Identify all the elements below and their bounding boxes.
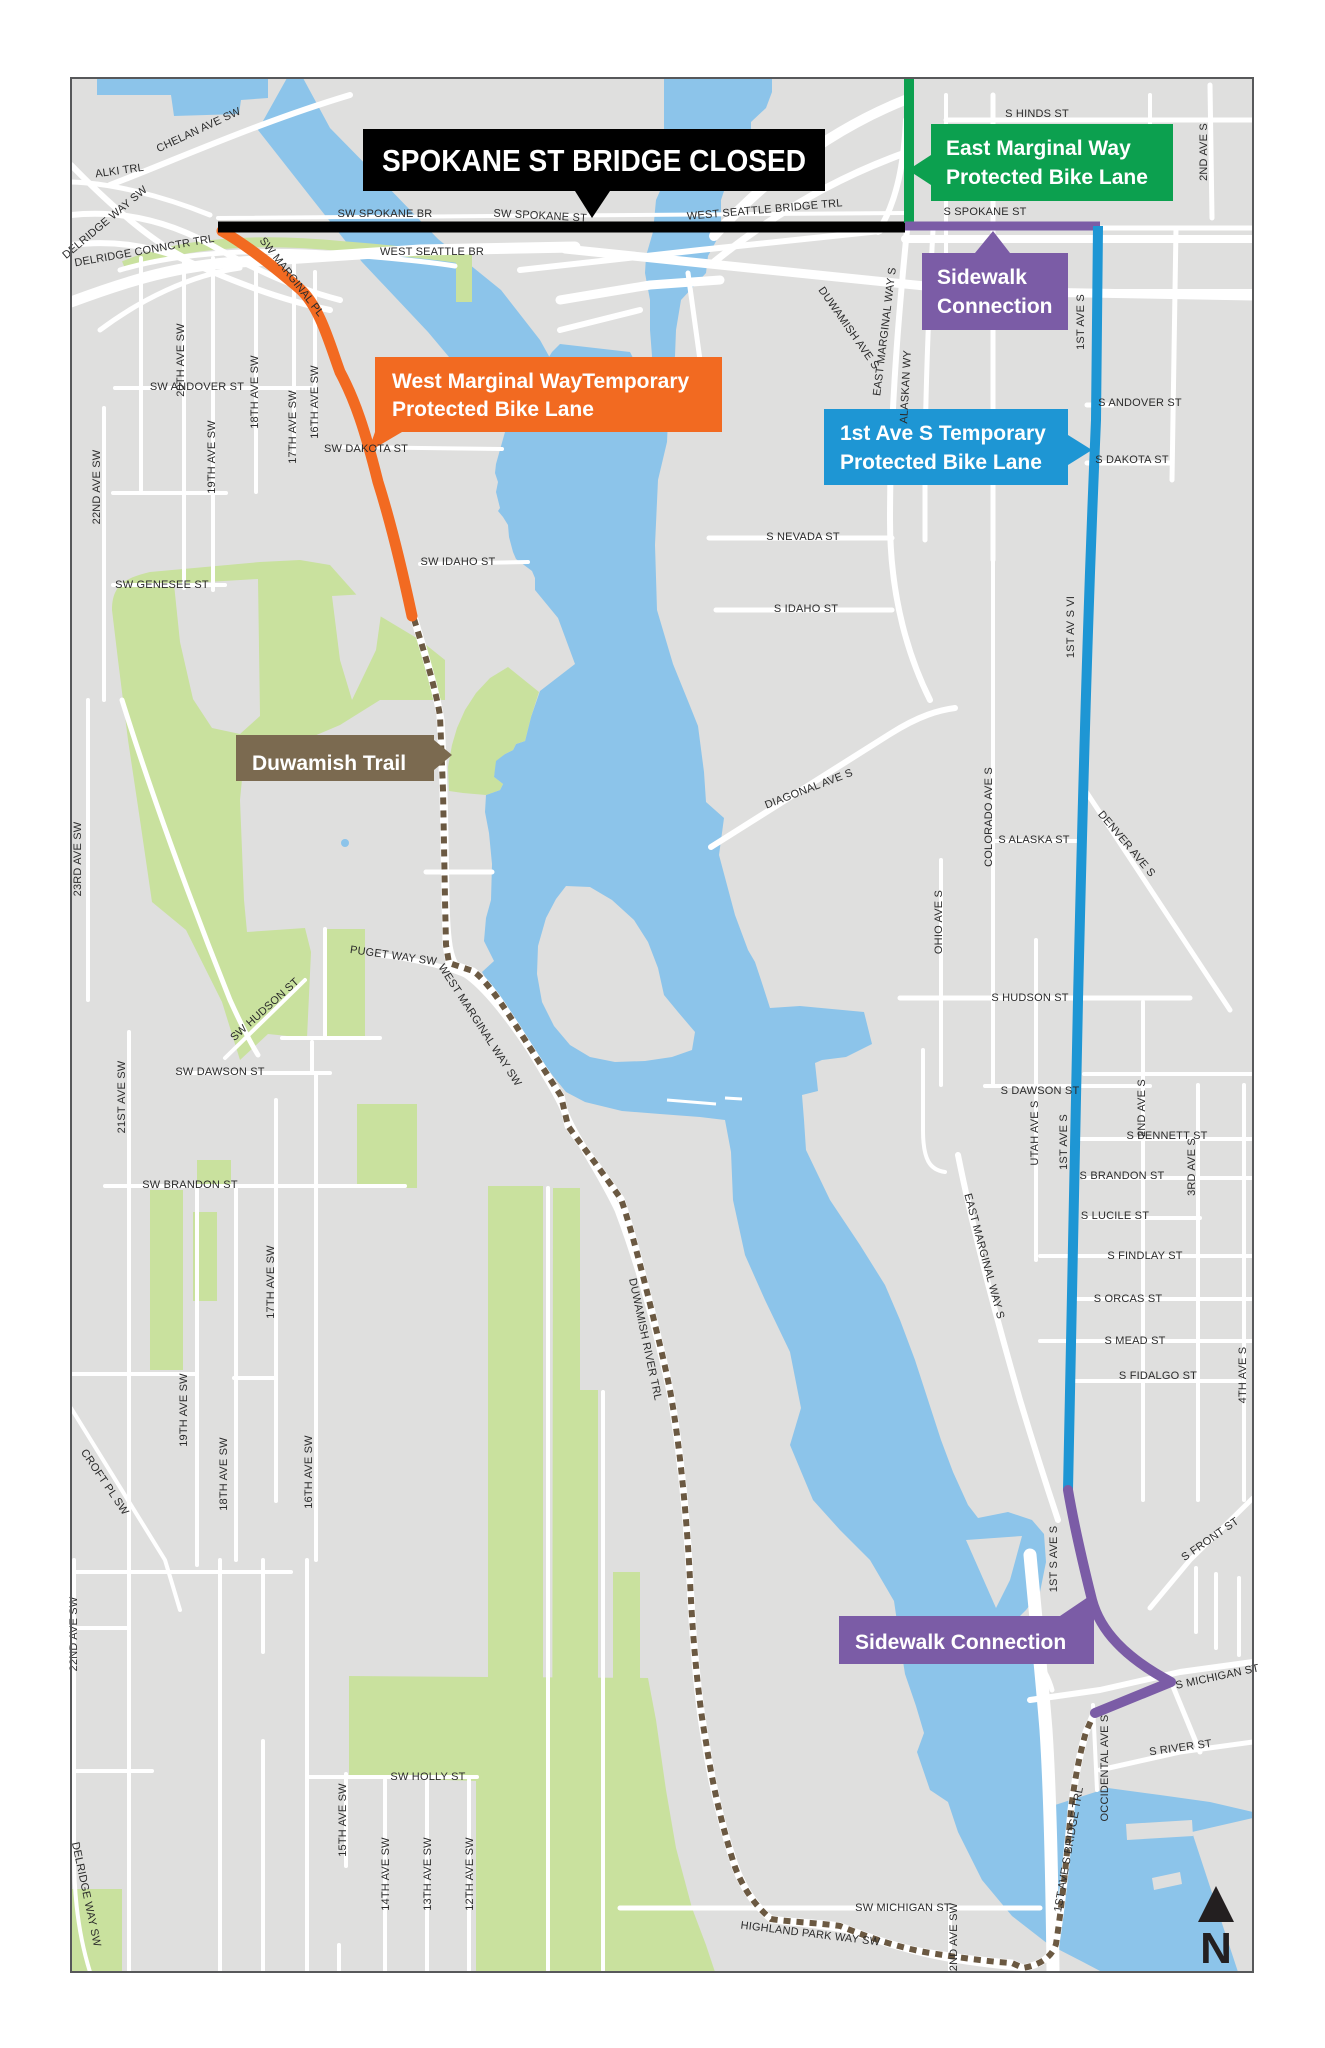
svg-text:SW HOLLY ST: SW HOLLY ST	[390, 1771, 465, 1783]
svg-text:1ST S AVE S: 1ST S AVE S	[1048, 1526, 1060, 1593]
svg-text:SW DAKOTA ST: SW DAKOTA ST	[324, 443, 408, 455]
svg-text:Sidewalk Connection: Sidewalk Connection	[855, 1631, 1066, 1654]
svg-text:16TH AVE SW: 16TH AVE SW	[303, 1435, 315, 1509]
svg-text:SW ANDOVER ST: SW ANDOVER ST	[150, 381, 244, 393]
svg-text:19TH AVE SW: 19TH AVE SW	[178, 1373, 190, 1447]
svg-text:SPOKANE ST BRIDGE CLOSED: SPOKANE ST BRIDGE CLOSED	[382, 143, 806, 178]
svg-text:Protected Bike Lane: Protected Bike Lane	[392, 398, 594, 421]
svg-text:S MEAD ST: S MEAD ST	[1104, 1335, 1165, 1347]
svg-text:SW MICHIGAN ST: SW MICHIGAN ST	[855, 1902, 951, 1914]
svg-text:OHIO AVE S: OHIO AVE S	[933, 890, 945, 954]
svg-text:22ND AVE SW: 22ND AVE SW	[68, 1596, 80, 1671]
svg-text:SW GENESEE ST: SW GENESEE ST	[115, 579, 209, 591]
svg-text:SW DAWSON ST: SW DAWSON ST	[175, 1066, 264, 1078]
svg-text:18TH AVE SW: 18TH AVE SW	[249, 355, 261, 429]
svg-text:S LUCILE ST: S LUCILE ST	[1081, 1210, 1149, 1222]
svg-text:S SPOKANE ST: S SPOKANE ST	[943, 206, 1026, 218]
svg-text:N: N	[1200, 1924, 1232, 1973]
svg-text:S NEVADA ST: S NEVADA ST	[766, 531, 840, 543]
svg-text:S FINDLAY ST: S FINDLAY ST	[1107, 1250, 1182, 1262]
svg-text:2ND AVE S: 2ND AVE S	[1136, 1079, 1148, 1137]
svg-text:S ORCAS ST: S ORCAS ST	[1094, 1293, 1163, 1305]
svg-text:S HUDSON ST: S HUDSON ST	[991, 992, 1068, 1004]
svg-text:S ANDOVER ST: S ANDOVER ST	[1098, 397, 1182, 409]
svg-text:Protected Bike Lane: Protected Bike Lane	[946, 166, 1148, 189]
svg-text:S DAWSON ST: S DAWSON ST	[1001, 1085, 1080, 1097]
svg-text:12TH AVE SW: 12TH AVE SW	[464, 1837, 476, 1911]
svg-text:COLORADO AVE S: COLORADO AVE S	[983, 767, 995, 867]
svg-text:Sidewalk: Sidewalk	[937, 266, 1027, 289]
svg-text:14TH AVE SW: 14TH AVE SW	[380, 1837, 392, 1911]
svg-text:2ND AVE SW: 2ND AVE SW	[948, 1902, 960, 1971]
svg-text:3RD AVE S: 3RD AVE S	[1186, 1138, 1198, 1196]
svg-text:15TH AVE SW: 15TH AVE SW	[337, 1783, 349, 1857]
svg-text:17TH AVE SW: 17TH AVE SW	[265, 1245, 277, 1319]
svg-text:1ST AVE S: 1ST AVE S	[1058, 1114, 1070, 1170]
svg-text:1ST AVE S: 1ST AVE S	[1075, 294, 1087, 350]
svg-text:19TH AVE SW: 19TH AVE SW	[206, 420, 218, 494]
svg-text:16TH AVE SW: 16TH AVE SW	[309, 365, 321, 439]
svg-text:SW BRANDON ST: SW BRANDON ST	[142, 1179, 238, 1191]
svg-text:1ST AV S VI: 1ST AV S VI	[1065, 596, 1077, 658]
svg-text:S FIDALGO ST: S FIDALGO ST	[1119, 1370, 1197, 1382]
svg-text:West Marginal WayTemporary: West Marginal WayTemporary	[392, 370, 690, 393]
svg-text:S HINDS ST: S HINDS ST	[1005, 108, 1069, 120]
svg-text:Protected Bike Lane: Protected Bike Lane	[840, 451, 1042, 474]
svg-text:18TH AVE SW: 18TH AVE SW	[218, 1437, 230, 1511]
svg-text:2ND AVE S: 2ND AVE S	[1198, 123, 1210, 181]
svg-text:Connection: Connection	[937, 295, 1053, 318]
svg-text:SW IDAHO ST: SW IDAHO ST	[421, 556, 496, 568]
svg-text:21ST AVE SW: 21ST AVE SW	[116, 1060, 128, 1133]
svg-text:SW SPOKANE BR: SW SPOKANE BR	[338, 208, 433, 220]
svg-text:WEST SEATTLE BR: WEST SEATTLE BR	[380, 246, 484, 258]
svg-text:OCCIDENTAL AVE S: OCCIDENTAL AVE S	[1099, 1715, 1111, 1822]
svg-text:S DAKOTA ST: S DAKOTA ST	[1095, 454, 1169, 466]
svg-text:UTAH AVE S: UTAH AVE S	[1029, 1100, 1041, 1165]
svg-text:1st Ave S Temporary: 1st Ave S Temporary	[840, 422, 1046, 445]
svg-text:23RD AVE SW: 23RD AVE SW	[72, 821, 84, 896]
svg-text:East Marginal Way: East Marginal Way	[946, 137, 1131, 160]
svg-text:S BRANDON ST: S BRANDON ST	[1080, 1170, 1165, 1182]
svg-text:17TH AVE SW: 17TH AVE SW	[287, 390, 299, 464]
svg-text:22ND AVE SW: 22ND AVE SW	[91, 449, 103, 524]
svg-text:S IDAHO ST: S IDAHO ST	[774, 603, 838, 615]
svg-text:4TH AVE S: 4TH AVE S	[1237, 1347, 1249, 1404]
svg-text:S ALASKA ST: S ALASKA ST	[998, 834, 1069, 846]
svg-text:13TH AVE SW: 13TH AVE SW	[422, 1837, 434, 1911]
svg-text:Duwamish Trail: Duwamish Trail	[252, 752, 406, 775]
